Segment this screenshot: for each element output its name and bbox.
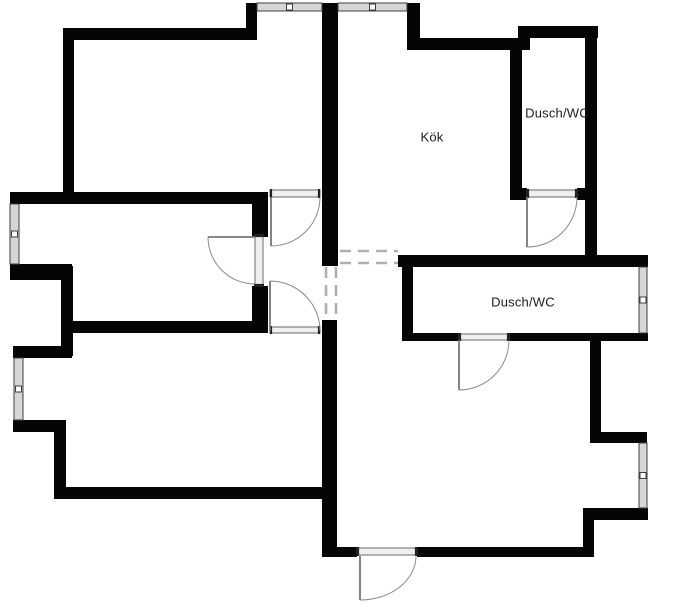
wall — [63, 28, 74, 197]
wall — [246, 3, 257, 40]
door-swing-arc — [270, 281, 320, 331]
wall — [322, 3, 338, 266]
window-mullion — [12, 231, 18, 237]
room-label-dusch-wc-top: Dusch/WC — [525, 106, 589, 121]
wall — [402, 333, 459, 341]
wall — [412, 38, 530, 50]
room-label-dusch-wc-mid: Dusch/WC — [491, 295, 555, 310]
window-mullion — [287, 4, 293, 10]
wall — [590, 341, 601, 443]
wall — [10, 192, 265, 204]
door-swing-arc — [360, 557, 416, 600]
wall — [417, 547, 594, 557]
wall — [322, 320, 337, 557]
wall — [518, 26, 530, 50]
floor-plan: Kök Dusch/WC Dusch/WC — [0, 0, 700, 607]
door-opening — [357, 548, 417, 555]
wall — [322, 547, 357, 557]
floor-plan-canvas — [0, 0, 700, 607]
door-opening — [459, 334, 509, 340]
wall — [590, 432, 647, 443]
room-label-kok: Kök — [420, 130, 443, 145]
wall — [577, 188, 597, 200]
wall — [63, 28, 257, 40]
wall — [252, 286, 268, 333]
window-mullion — [370, 4, 376, 10]
wall — [54, 487, 332, 499]
wall — [510, 50, 522, 200]
wall — [61, 266, 73, 356]
wall — [509, 333, 648, 341]
door-swing-arc — [208, 237, 255, 284]
door-opening — [255, 235, 263, 286]
wall — [252, 192, 268, 237]
door-opening — [270, 190, 320, 197]
door-swing-arc — [271, 197, 320, 246]
door-swing-arc — [459, 340, 509, 390]
wall — [398, 255, 648, 267]
window-mullion — [16, 386, 22, 392]
wall — [13, 346, 72, 358]
wall — [510, 188, 527, 200]
door-swing-arc — [527, 197, 577, 247]
wall — [63, 321, 265, 333]
window-mullion — [640, 297, 646, 303]
door-opening — [527, 190, 577, 197]
door-opening — [270, 327, 320, 333]
window-mullion — [640, 473, 646, 479]
wall — [402, 267, 413, 341]
wall — [585, 26, 597, 267]
